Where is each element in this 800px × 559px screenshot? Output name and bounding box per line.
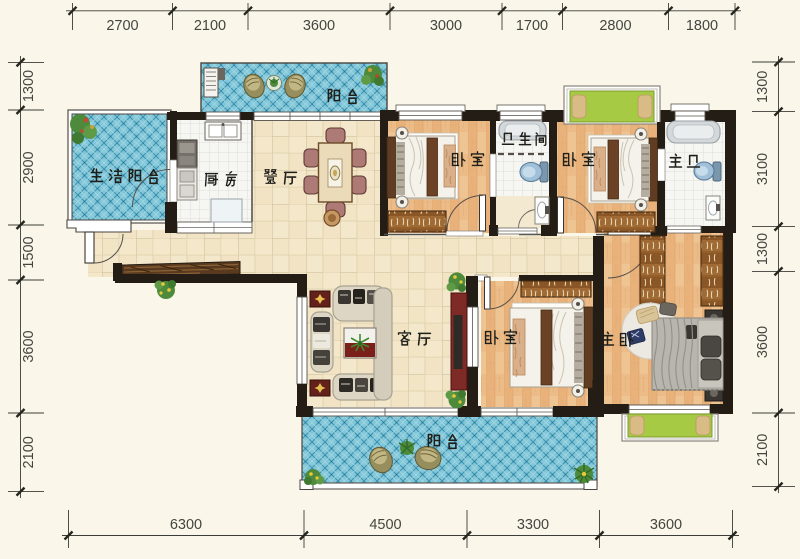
svg-text:1300: 1300	[755, 71, 771, 103]
svg-text:2100: 2100	[755, 434, 771, 466]
svg-text:3600: 3600	[755, 326, 771, 358]
svg-text:6300: 6300	[170, 517, 202, 533]
svg-text:3600: 3600	[650, 517, 682, 533]
svg-text:3600: 3600	[21, 330, 37, 362]
svg-text:3300: 3300	[517, 517, 549, 533]
svg-text:1300: 1300	[755, 233, 771, 265]
svg-text:2100: 2100	[21, 436, 37, 468]
svg-text:3600: 3600	[303, 18, 335, 34]
svg-text:2900: 2900	[21, 151, 37, 183]
svg-text:1800: 1800	[686, 18, 718, 34]
svg-text:2700: 2700	[106, 18, 138, 34]
svg-text:2800: 2800	[599, 18, 631, 34]
svg-text:4500: 4500	[369, 517, 401, 533]
svg-text:3100: 3100	[755, 153, 771, 185]
svg-text:2100: 2100	[194, 18, 226, 34]
svg-text:3000: 3000	[430, 18, 462, 34]
svg-text:1300: 1300	[21, 70, 37, 102]
svg-text:1500: 1500	[21, 236, 37, 268]
svg-text:1700: 1700	[516, 18, 548, 34]
